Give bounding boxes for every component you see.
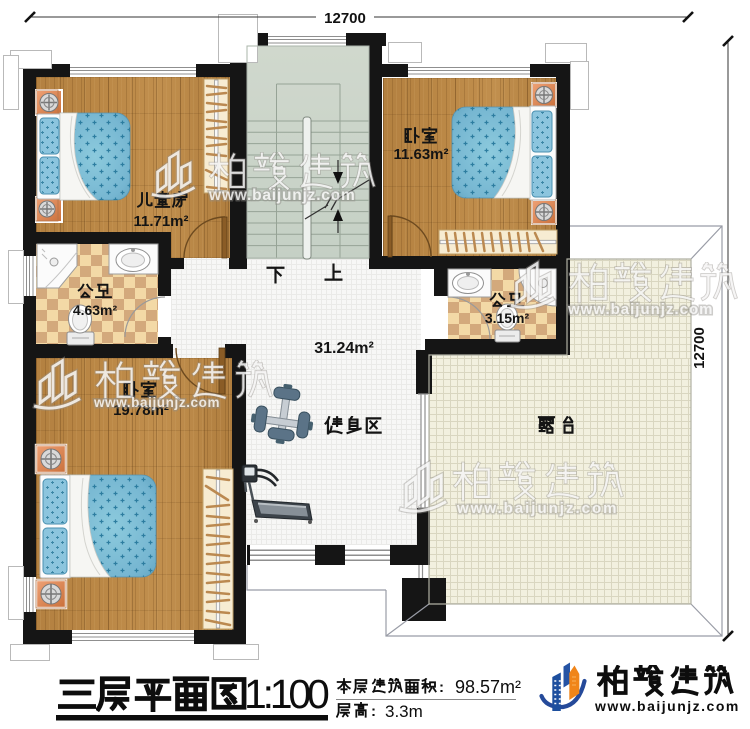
svg-text:11.63m²: 11.63m² (393, 146, 448, 163)
svg-text:11.71m²: 11.71m² (133, 213, 188, 230)
svg-text:3.3m: 3.3m (385, 702, 423, 721)
svg-text:www.baijunjz.com: www.baijunjz.com (567, 301, 713, 318)
svg-text:1:100: 1:100 (244, 671, 329, 717)
svg-text:12700: 12700 (324, 10, 366, 27)
svg-text::: : (439, 679, 444, 696)
svg-text::: : (371, 703, 376, 720)
svg-text:98.57m²: 98.57m² (455, 677, 521, 697)
svg-text:12700: 12700 (691, 327, 708, 369)
svg-text:www.baijunjz.com: www.baijunjz.com (208, 187, 356, 204)
svg-text:3.15m²: 3.15m² (485, 310, 530, 326)
svg-text:31.24m²: 31.24m² (314, 340, 374, 357)
svg-text:4.63m²: 4.63m² (73, 302, 118, 318)
svg-text:www.baijunjz.com: www.baijunjz.com (93, 395, 220, 410)
svg-text:www.baijunjz.com: www.baijunjz.com (594, 698, 740, 714)
svg-text:www.baijunjz.com: www.baijunjz.com (456, 500, 618, 517)
